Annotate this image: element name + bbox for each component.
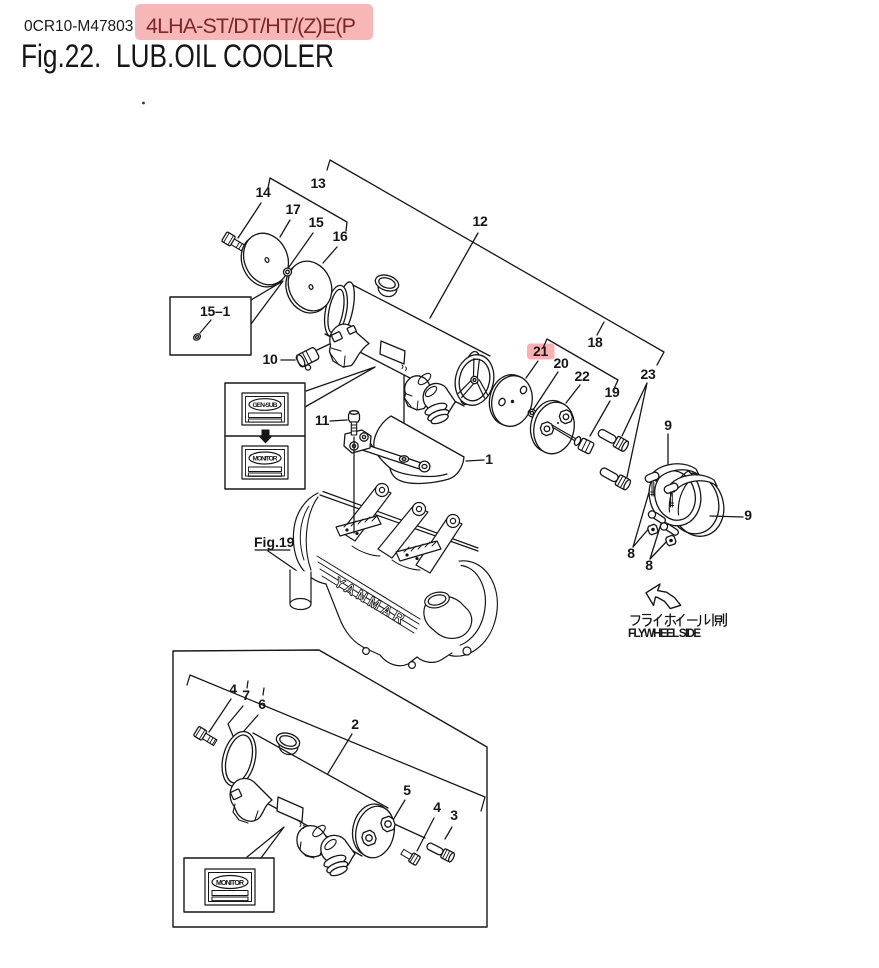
svg-text:3: 3 xyxy=(450,807,458,823)
svg-text:Fig.19: Fig.19 xyxy=(254,534,295,550)
svg-text:14: 14 xyxy=(256,184,271,200)
svg-text:GEN-SUB: GEN-SUB xyxy=(253,402,278,409)
svg-text:6: 6 xyxy=(258,696,266,712)
svg-text:23: 23 xyxy=(641,366,656,382)
svg-text:11: 11 xyxy=(315,412,330,428)
svg-text:4LHA-ST/DT/HT/(Z)E(P: 4LHA-ST/DT/HT/(Z)E(P xyxy=(146,14,356,38)
svg-text:9: 9 xyxy=(664,417,672,433)
svg-text:10: 10 xyxy=(263,351,278,367)
svg-text:12: 12 xyxy=(473,213,488,229)
svg-text:13: 13 xyxy=(311,175,326,191)
svg-text:2: 2 xyxy=(351,716,359,732)
svg-text:15: 15 xyxy=(309,214,324,230)
svg-text:9: 9 xyxy=(744,507,752,523)
svg-text:4: 4 xyxy=(433,799,441,815)
svg-text:8: 8 xyxy=(627,545,635,561)
svg-text:FLYWHEEL SIDE: FLYWHEEL SIDE xyxy=(628,628,701,640)
svg-text:5: 5 xyxy=(403,782,411,798)
svg-text:MONITOR: MONITOR xyxy=(253,456,278,463)
svg-text:20: 20 xyxy=(554,355,569,371)
svg-text:Fig.22. LUB.OIL COOLER: Fig.22. LUB.OIL COOLER xyxy=(21,38,334,74)
svg-text:21: 21 xyxy=(533,343,548,359)
svg-text:22: 22 xyxy=(575,368,590,384)
svg-text:18: 18 xyxy=(588,334,603,350)
svg-text:4: 4 xyxy=(229,681,237,697)
svg-text:MONITOR: MONITOR xyxy=(216,880,244,887)
svg-text:1: 1 xyxy=(485,451,493,467)
svg-text:15–1: 15–1 xyxy=(200,303,230,319)
svg-text:16: 16 xyxy=(333,228,348,244)
svg-text:17: 17 xyxy=(286,201,301,217)
svg-text:0CR10-M47803: 0CR10-M47803 xyxy=(24,18,133,35)
svg-text:19: 19 xyxy=(605,384,620,400)
svg-text:8: 8 xyxy=(645,557,653,573)
svg-text:7: 7 xyxy=(242,687,250,703)
